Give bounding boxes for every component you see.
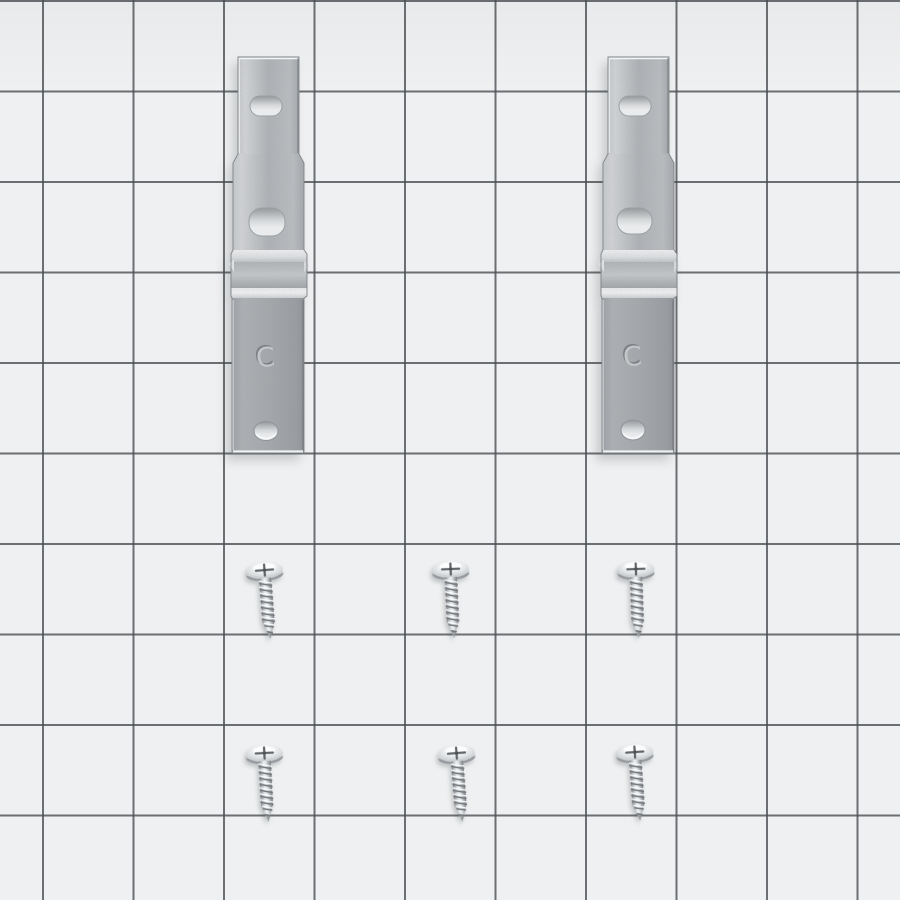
bracket-stamp: C C xyxy=(621,339,643,373)
screw-row1-left xyxy=(242,558,292,645)
screw-row2-right xyxy=(612,741,662,828)
bracket-slot-hole-middle xyxy=(249,208,285,236)
bracket-slot-hole-top xyxy=(619,96,651,116)
mounting-bracket-left: C C xyxy=(223,50,315,462)
screw-row2-left xyxy=(242,742,290,828)
bracket-screw-hole-bottom xyxy=(254,422,278,441)
bracket-slot-hole-middle xyxy=(617,208,652,234)
bracket-slot-hole-top xyxy=(250,96,282,116)
screw-row1-right xyxy=(614,558,661,643)
product-photo: C C xyxy=(0,0,900,900)
bracket-screw-hole-bottom xyxy=(621,420,645,440)
bracket-stamp: C C xyxy=(253,340,276,374)
screw-row2-center xyxy=(434,741,484,828)
bracket-stamp-letter: C xyxy=(622,341,643,373)
mounting-bracket-right: C C xyxy=(593,50,685,462)
bracket-stamp-letter: C xyxy=(255,342,276,375)
screw-row1-center xyxy=(428,558,476,644)
